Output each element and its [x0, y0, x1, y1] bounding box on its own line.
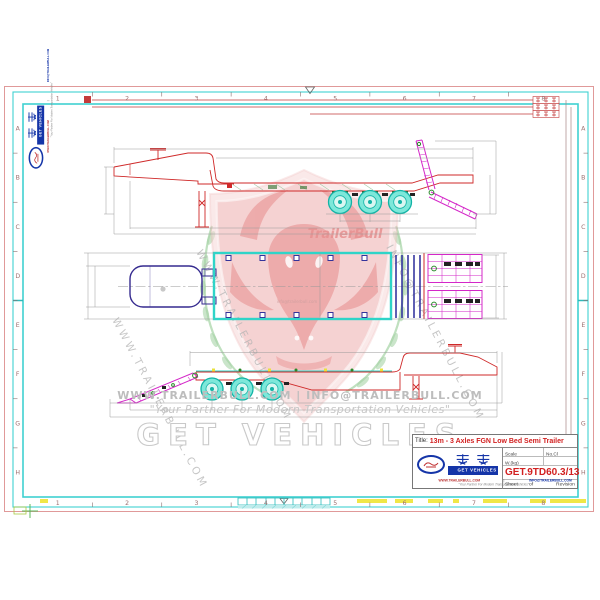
- brand-chinese-glyphs: [27, 108, 36, 142]
- wheel: [359, 191, 382, 214]
- revision-label: Revision: [556, 482, 575, 487]
- redline-label: [533, 97, 559, 104]
- brand-oval-mark: [32, 152, 38, 164]
- brand-oval-logo: [417, 455, 445, 474]
- sheet-side-logo: GET VEHICLES WWW.TRAILERBULL.COM|INFO@TR…: [27, 104, 54, 171]
- title-label: Title:: [415, 438, 428, 444]
- zone-label: 5: [333, 500, 337, 507]
- zone-label: A: [16, 126, 21, 133]
- zone-label: B: [16, 175, 20, 182]
- watermark-tagline: "Your Partner For Modern Transportation …: [150, 403, 451, 416]
- redline-label: [533, 111, 559, 118]
- zone-label: 7: [472, 96, 476, 103]
- brand-name-bar: GET VEHICLES: [448, 466, 498, 475]
- scale-field: Scale: [503, 448, 544, 456]
- zone-label: A: [581, 126, 586, 133]
- zone-label: H: [15, 469, 20, 476]
- fold-scale-bar: [238, 498, 330, 509]
- weight-field: W.(kg): [503, 457, 544, 465]
- brand-chinese-glyphs: [451, 453, 495, 465]
- zone-label: H: [581, 469, 586, 476]
- watermark-contact-line: WWW.TRAILERBULL.COM | INFO@TRAILERBULL.C…: [117, 389, 482, 402]
- zone-label: C: [581, 224, 585, 231]
- zone-label: 4: [264, 500, 268, 507]
- watermark-brand-text: TrailerBull: [308, 227, 383, 242]
- drawing-number: GET.9TD60.3/13: [503, 466, 577, 480]
- drawing-title: 13m - 3 Axles FGN Low Bed Semi Trailer: [430, 438, 564, 445]
- zone-label: 6: [403, 500, 407, 507]
- zone-label: 8: [541, 500, 545, 507]
- check-marks-yellow: [40, 499, 586, 503]
- zone-label: F: [16, 371, 20, 378]
- brand-name-bar: GET VEHICLES: [37, 106, 44, 145]
- ramps-folded: [416, 140, 477, 219]
- zone-label: D: [581, 273, 586, 280]
- zone-label: B: [581, 175, 585, 182]
- zone-label: D: [15, 273, 20, 280]
- brand-website: WWW.TRAILERBULL.COM: [48, 120, 49, 153]
- drawing-sheet: TrailerBull WWW.TRAILERBULL.COM INFO@TRA…: [0, 0, 600, 600]
- wheel: [329, 191, 352, 214]
- of-label: of: [529, 482, 533, 487]
- zone-label: 8: [541, 96, 545, 103]
- brand-website: WWW.TRAILERBULL.COM: [438, 480, 480, 482]
- sheet-label: Sheet: [505, 482, 518, 487]
- zone-label: E: [16, 322, 20, 329]
- brand-logo-unit: GET VEHICLES WWW.TRAILERBULL.COM|INFO@TR…: [27, 104, 51, 171]
- zone-label: G: [15, 420, 20, 427]
- redline-label: [533, 104, 559, 111]
- zone-label: 2: [125, 96, 129, 103]
- title-block: Title: 13m - 3 Axles FGN Low Bed Semi Tr…: [412, 434, 578, 489]
- zone-label: 3: [194, 96, 198, 103]
- empty-field: [544, 457, 577, 465]
- redline-start-marker: [84, 96, 91, 103]
- zone-label: 6: [403, 96, 407, 103]
- zone-label: C: [16, 224, 20, 231]
- watermark-email-small: info@trailerbull.com: [277, 299, 318, 304]
- zone-label: 5: [333, 96, 337, 103]
- drawing-sheet-svg: TrailerBull WWW.TRAILERBULL.COM INFO@TRA…: [0, 0, 600, 600]
- zone-label: 4: [264, 96, 268, 103]
- brand-name-label: GET VEHICLES: [39, 113, 42, 137]
- zone-label: E: [581, 322, 585, 329]
- zone-label: F: [582, 371, 586, 378]
- zone-label: 2: [125, 500, 129, 507]
- brand-logo-unit: GET VEHICLES WWW.TRAILERBULL.COM|INFO@TR…: [415, 453, 501, 484]
- zone-label: 1: [56, 96, 60, 103]
- wheel: [389, 191, 412, 214]
- brand-oval-logo: [28, 147, 43, 169]
- zone-label: G: [581, 420, 586, 427]
- brand-email: INFO@TRAILERBULL.COM: [48, 48, 49, 81]
- zone-label: 7: [472, 500, 476, 507]
- no-field: No.Cl: [544, 448, 577, 456]
- title-block-logo-cell: GET VEHICLES WWW.TRAILERBULL.COM|INFO@TR…: [413, 448, 503, 489]
- title-row: Title: 13m - 3 Axles FGN Low Bed Semi Tr…: [413, 435, 577, 448]
- zone-label: 1: [56, 500, 60, 507]
- brand-name-label: GET VEHICLES: [458, 468, 489, 472]
- brand-oval-mark: [423, 460, 439, 468]
- zone-label: 3: [194, 500, 198, 507]
